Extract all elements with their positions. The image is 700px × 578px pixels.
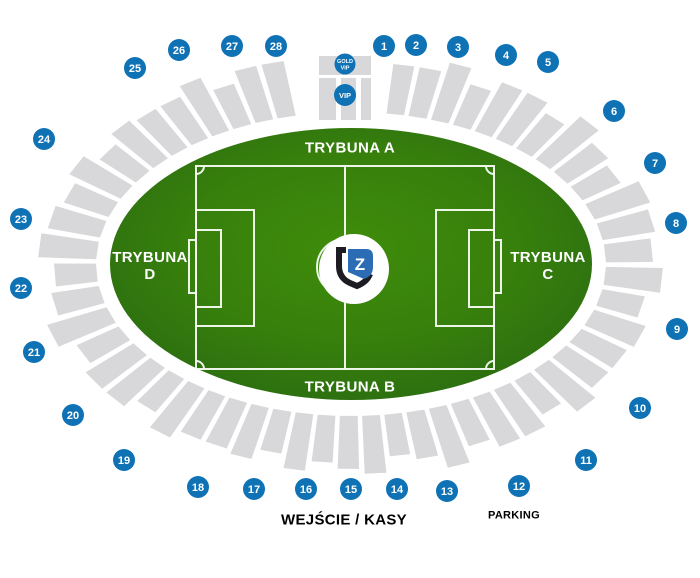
- logo-letter: Z: [355, 255, 365, 274]
- stand-block: [338, 416, 360, 469]
- section-number: 3: [455, 42, 461, 54]
- vip-block-left: [319, 78, 336, 120]
- trybuna-d-line2: D: [112, 266, 188, 283]
- stand-block: [604, 267, 663, 293]
- section-number: 15: [345, 484, 357, 496]
- section-marker-11[interactable]: 11: [575, 449, 597, 471]
- section-number: 4: [503, 50, 510, 62]
- stand-block: [604, 238, 653, 262]
- section-marker-7[interactable]: 7: [644, 152, 666, 174]
- section-marker-23[interactable]: 23: [10, 208, 32, 230]
- section-number: 28: [270, 41, 282, 53]
- section-marker-17[interactable]: 17: [243, 478, 265, 500]
- stand-block: [387, 64, 415, 115]
- section-number: 8: [673, 218, 679, 230]
- section-number: 18: [192, 482, 204, 494]
- stand-label-trybuna-b: TRYBUNA B: [305, 378, 396, 395]
- section-number: 23: [15, 214, 27, 226]
- stand-block: [312, 415, 336, 463]
- section-number: 12: [513, 481, 525, 493]
- stand-label-trybuna-d: TRYBUNA D: [112, 249, 188, 284]
- stand-label-trybuna-c: TRYBUNA C: [510, 249, 586, 284]
- section-number: 27: [226, 41, 238, 53]
- gold-vip-label-line1: GOLD: [337, 59, 353, 65]
- section-marker-24[interactable]: 24: [33, 128, 55, 150]
- section-marker-3[interactable]: 3: [447, 36, 469, 58]
- vip-block-right: [361, 78, 371, 120]
- section-number: 25: [129, 63, 141, 75]
- section-marker-16[interactable]: 16: [295, 478, 317, 500]
- section-number: 6: [611, 106, 617, 118]
- section-number: 26: [173, 45, 185, 57]
- section-marker-15[interactable]: 15: [340, 478, 362, 500]
- section-marker-8[interactable]: 8: [665, 212, 687, 234]
- vip-label: VIP: [339, 91, 351, 100]
- section-number: 24: [38, 134, 51, 146]
- section-marker-14[interactable]: 14: [386, 478, 408, 500]
- section-number: 16: [300, 484, 312, 496]
- trybuna-c-line1: TRYBUNA: [510, 249, 586, 266]
- section-number: 21: [28, 347, 40, 359]
- section-marker-2[interactable]: 2: [405, 34, 427, 56]
- stand-block: [38, 233, 99, 259]
- section-number: 14: [391, 484, 404, 496]
- stand-block: [384, 413, 410, 456]
- trybuna-d-line1: TRYBUNA: [112, 249, 188, 266]
- section-number: 19: [118, 455, 130, 467]
- section-marker-1[interactable]: 1: [373, 35, 395, 57]
- section-number: 9: [674, 324, 680, 336]
- stand-label-trybuna-a: TRYBUNA A: [305, 139, 395, 156]
- section-marker-26[interactable]: 26: [168, 39, 190, 61]
- stand-block: [362, 415, 386, 474]
- section-marker-13[interactable]: 13: [436, 480, 458, 502]
- parking-label: PARKING: [488, 510, 540, 523]
- section-number: 7: [652, 158, 658, 170]
- section-marker-18[interactable]: 18: [187, 476, 209, 498]
- gold-vip-label-line2: VIP: [341, 66, 350, 72]
- section-number: 20: [67, 410, 79, 422]
- section-number: 1: [381, 41, 387, 53]
- section-marker-21[interactable]: 21: [23, 341, 45, 363]
- section-marker-20[interactable]: 20: [62, 404, 84, 426]
- stadium-map: Z GOLD VIP VIP 1234567891011121314151617…: [0, 0, 700, 578]
- section-marker-9[interactable]: 9: [666, 318, 688, 340]
- section-number: 2: [413, 40, 419, 52]
- section-marker-22[interactable]: 22: [10, 277, 32, 299]
- section-marker-25[interactable]: 25: [124, 57, 146, 79]
- section-marker-12[interactable]: 12: [508, 475, 530, 497]
- section-marker-4[interactable]: 4: [495, 44, 517, 66]
- stadium-svg: Z GOLD VIP VIP 1234567891011121314151617…: [0, 0, 700, 578]
- trybuna-c-line2: C: [510, 266, 586, 283]
- section-marker-10[interactable]: 10: [629, 397, 651, 419]
- club-logo: Z: [319, 234, 389, 304]
- section-marker-27[interactable]: 27: [221, 35, 243, 57]
- section-number: 5: [545, 57, 551, 69]
- section-number: 17: [248, 484, 260, 496]
- stand-block: [54, 264, 98, 287]
- section-marker-6[interactable]: 6: [603, 100, 625, 122]
- section-number: 22: [15, 283, 27, 295]
- section-marker-28[interactable]: 28: [265, 35, 287, 57]
- section-number: 11: [580, 455, 592, 467]
- section-number: 10: [634, 403, 646, 415]
- section-marker-19[interactable]: 19: [113, 449, 135, 471]
- section-marker-5[interactable]: 5: [537, 51, 559, 73]
- entrance-cashier-label: WEJŚCIE / KASY: [281, 511, 407, 528]
- section-number: 13: [441, 486, 453, 498]
